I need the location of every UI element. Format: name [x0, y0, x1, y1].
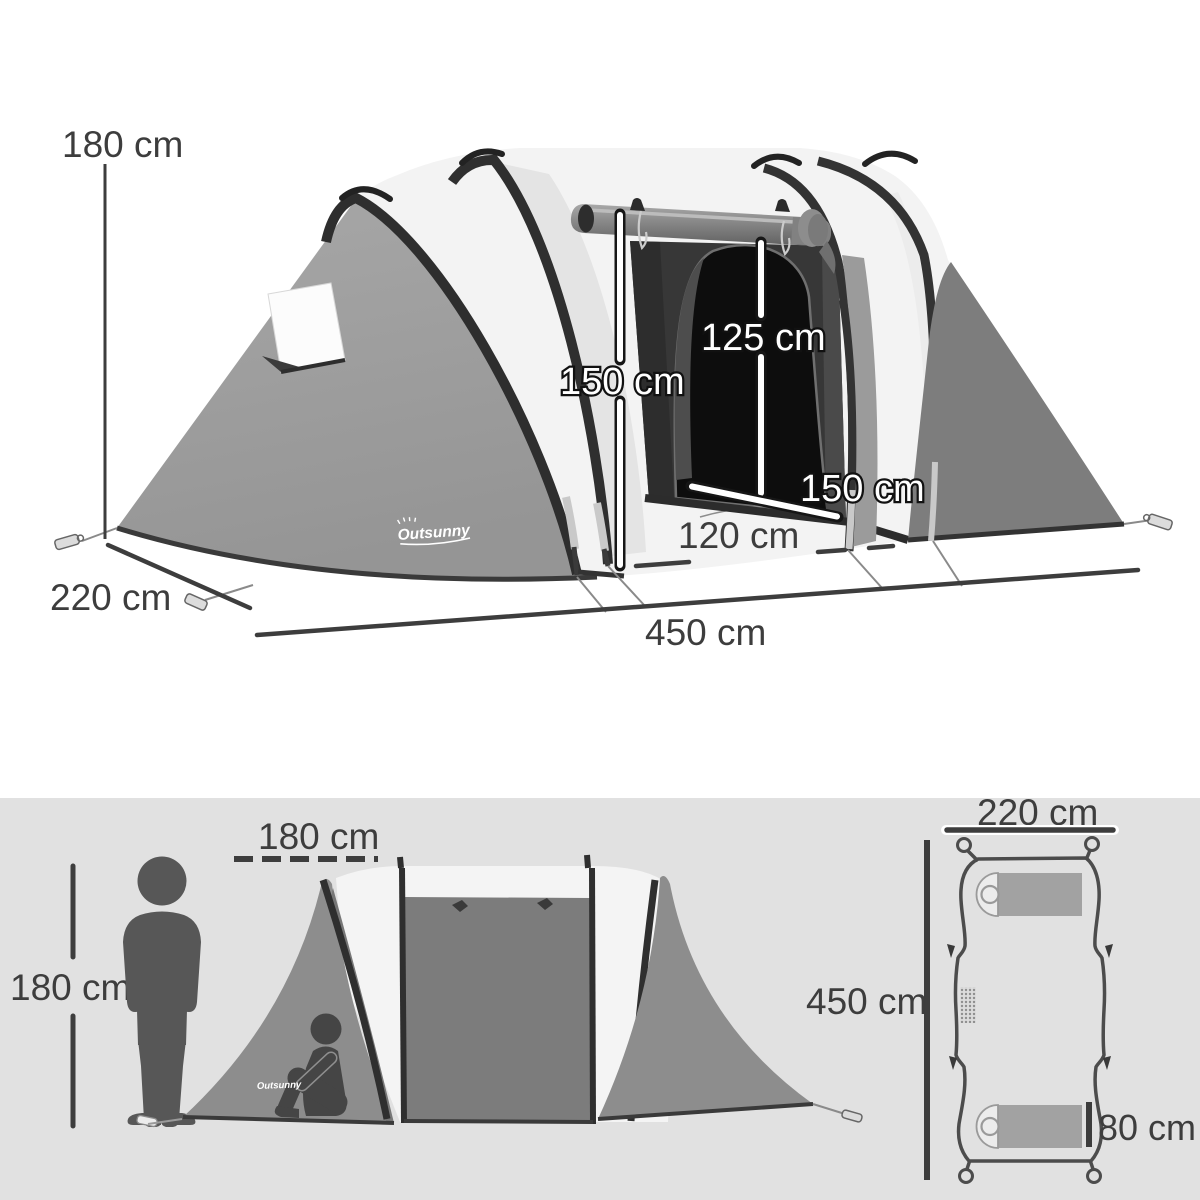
svg-text:Outsunny: Outsunny — [257, 1079, 302, 1092]
svg-text:450 cm: 450 cm — [645, 612, 766, 653]
svg-text:125 cm: 125 cm — [701, 317, 826, 359]
svg-text:150 cm: 150 cm — [800, 468, 925, 510]
svg-text:80 cm: 80 cm — [1098, 1107, 1196, 1148]
svg-text:180 cm: 180 cm — [10, 967, 131, 1008]
svg-text:220 cm: 220 cm — [50, 577, 171, 618]
svg-text:180 cm: 180 cm — [62, 124, 183, 165]
svg-text:150 cm: 150 cm — [560, 361, 685, 403]
svg-text:120 cm: 120 cm — [678, 515, 799, 556]
svg-text:450 cm: 450 cm — [806, 981, 927, 1022]
svg-text:180 cm: 180 cm — [258, 816, 379, 857]
